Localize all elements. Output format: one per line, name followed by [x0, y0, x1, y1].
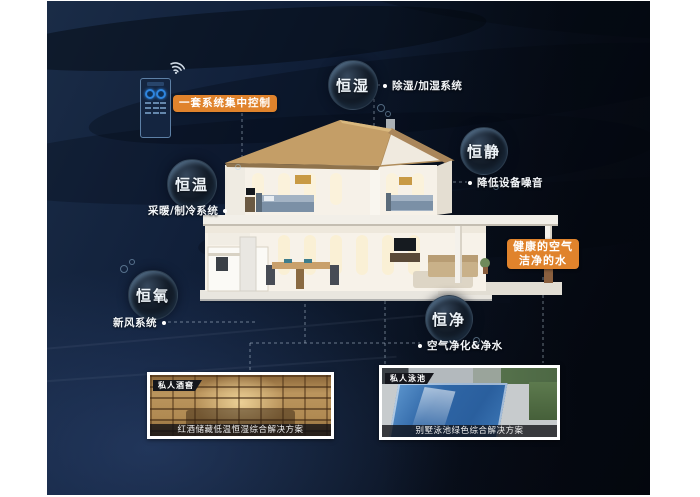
- note-text: 降低设备噪音: [477, 175, 543, 190]
- decor-bubble: [377, 104, 385, 112]
- control-panel-dials: [143, 89, 168, 99]
- bubble-constant-oxygen: 恒氧: [128, 270, 178, 320]
- bubble-label: 恒净: [432, 309, 466, 330]
- control-panel-row: [143, 102, 168, 104]
- note-hvac-system: 采暖/制冷系统: [148, 203, 227, 218]
- pool-caption: 别墅泳池绿色综合解决方案: [382, 425, 557, 437]
- bubble-label: 恒湿: [336, 75, 370, 96]
- decor-bubble: [235, 164, 241, 170]
- wine-cellar-image: 私人酒窖 红酒储藏低温恒湿综合解决方案: [150, 375, 331, 436]
- note-text: 采暖/制冷系统: [148, 203, 218, 218]
- bullet-dot: [162, 321, 166, 325]
- wine-cellar-tag: 私人酒窖: [153, 380, 202, 391]
- note-text: 除湿/加湿系统: [392, 78, 462, 93]
- pool-image: 私人泳池 别墅泳池绿色综合解决方案: [382, 368, 557, 437]
- poster-canvas: 一套系统集中控制 健康的空气 洁净的水 恒湿 恒静 恒温 恒氧 恒净 除湿/加湿…: [47, 1, 650, 495]
- decor-bubble: [385, 111, 391, 117]
- bubble-constant-quiet: 恒静: [460, 127, 508, 175]
- bubble-constant-temperature: 恒温: [167, 159, 217, 209]
- bubble-constant-humidity: 恒湿: [328, 60, 378, 110]
- control-panel-device: [140, 78, 171, 138]
- bubble-label: 恒氧: [136, 285, 170, 306]
- note-purification-system: 空气净化&净水: [418, 338, 503, 353]
- decor-bubble: [129, 259, 135, 265]
- note-fresh-air-system: 新风系统: [113, 315, 166, 330]
- note-text: 空气净化&净水: [427, 338, 503, 353]
- bullet-dot: [383, 84, 387, 88]
- bubble-label: 恒静: [467, 141, 501, 162]
- bullet-dot: [468, 181, 472, 185]
- control-panel-row: [143, 112, 168, 114]
- control-panel-header: [147, 82, 164, 86]
- clean-water-line: 洁净的水: [513, 254, 573, 268]
- central-control-badge: 一套系统集中控制: [173, 95, 277, 112]
- wine-cellar-photo: 私人酒窖 红酒储藏低温恒湿综合解决方案: [147, 372, 334, 439]
- decor-bubble: [120, 265, 128, 273]
- house-roof: [225, 119, 452, 170]
- pool-greenery: [529, 382, 557, 420]
- healthy-air-line: 健康的空气: [513, 240, 573, 254]
- note-text: 新风系统: [113, 315, 157, 330]
- control-panel-row: [143, 107, 168, 109]
- wifi-icon: [167, 59, 185, 75]
- bubble-label: 恒温: [175, 174, 209, 195]
- bullet-dot: [223, 209, 227, 213]
- note-noise-system: 降低设备噪音: [468, 175, 543, 190]
- dial-icon: [156, 89, 166, 99]
- house-lower-floor: [205, 225, 486, 291]
- bullet-dot: [418, 344, 422, 348]
- pool-tag: 私人泳池: [385, 373, 434, 384]
- bubble-constant-clean: 恒净: [425, 295, 473, 343]
- house-illustration: [200, 113, 570, 308]
- pool-photo: 私人泳池 别墅泳池绿色综合解决方案: [379, 365, 560, 440]
- dial-icon: [145, 89, 155, 99]
- note-humidity-system: 除湿/加湿系统: [383, 78, 462, 93]
- wine-cellar-caption: 红酒储藏低温恒湿综合解决方案: [150, 424, 331, 436]
- healthy-air-water-badge: 健康的空气 洁净的水: [507, 239, 579, 269]
- page: 一套系统集中控制 健康的空气 洁净的水 恒湿 恒静 恒温 恒氧 恒净 除湿/加湿…: [0, 0, 700, 497]
